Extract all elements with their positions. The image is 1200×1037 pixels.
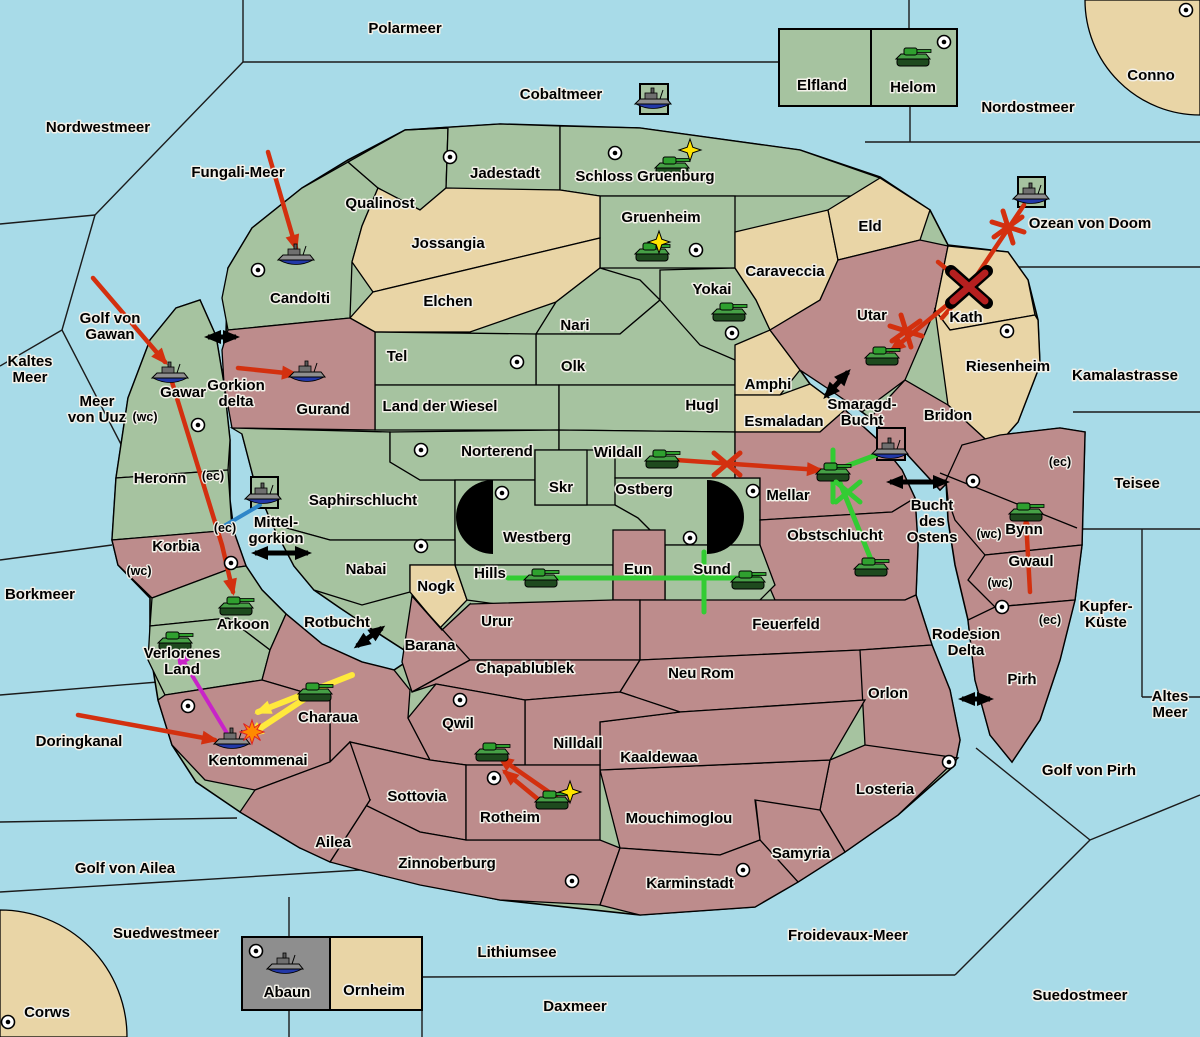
- coast-label: (ec): [202, 469, 224, 483]
- sea-label-fungali-meer: Fungali-Meer: [191, 164, 285, 181]
- box-label-province-box-ornheim: Ornheim: [343, 982, 405, 999]
- region-label-ostberg: Ostberg: [615, 481, 673, 498]
- region-label-tel: Tel: [387, 348, 408, 365]
- region-label-verlorenes-land: Land: [164, 661, 200, 678]
- region-label-obstschlucht: Obstschlucht: [787, 527, 883, 544]
- region-label-barana: Barana: [405, 637, 457, 654]
- circle-dot-marker: [684, 532, 697, 545]
- sea-label-rodesion-delta: Delta: [948, 642, 985, 659]
- explosion-marker: [240, 720, 264, 744]
- circle-dot-marker: [747, 485, 760, 498]
- region-label-nogk: Nogk: [417, 578, 455, 595]
- circle-dot-marker: [250, 945, 263, 958]
- box-label-province-box-elfland: Elfland: [797, 77, 847, 94]
- province-box-ornheim[interactable]: [330, 937, 422, 1010]
- sea-label-golf-von-ailea: Golf von Ailea: [75, 860, 176, 877]
- region-label-mouchimoglou: Mouchimoglou: [626, 810, 733, 827]
- region-rotheim[interactable]: [466, 765, 600, 840]
- sea-label-polarmeer: Polarmeer: [368, 20, 442, 37]
- sea-label-suedostmeer: Suedostmeer: [1032, 987, 1127, 1004]
- region-label-utar: Utar: [857, 307, 887, 324]
- sea-label-ozean-von-doom: Ozean von Doom: [1029, 215, 1152, 232]
- sea-label-nordostmeer: Nordostmeer: [981, 99, 1075, 116]
- region-label-orlon: Orlon: [868, 685, 908, 702]
- sea-label-froidevaux-meer: Froidevaux-Meer: [788, 927, 908, 944]
- circle-dot-marker: [996, 601, 1009, 614]
- sea-label-bucht-des-ostens: Bucht: [911, 497, 954, 514]
- region-label-nari: Nari: [560, 317, 589, 334]
- circle-dot-marker: [454, 694, 467, 707]
- circle-dot-marker: [1180, 4, 1193, 17]
- sea-label-meer-von-uuz: von Uuz: [68, 409, 126, 426]
- sea-label-kupfer-kueste: Küste: [1085, 614, 1127, 631]
- sea-label-smaragd-bucht: Bucht: [841, 412, 884, 429]
- sea-label-lithiumsee: Lithiumsee: [477, 944, 556, 961]
- region-label-hills: Hills: [474, 565, 506, 582]
- sea-label-smaragd-bucht: Smaragd-: [827, 396, 896, 413]
- coast-label: (ec): [1049, 455, 1071, 469]
- sea-label-bucht-des-ostens: des: [919, 513, 945, 530]
- region-label-nabai: Nabai: [346, 561, 387, 578]
- region-label-arkoon: Arkoon: [217, 616, 270, 633]
- region-label-esmaladan: Esmaladan: [744, 413, 823, 430]
- region-label-eld: Eld: [858, 218, 881, 235]
- coast-label: (ec): [214, 521, 236, 535]
- sea-label-rodesion-delta: Rodesion: [932, 626, 1000, 643]
- region-label-gruenheim: Gruenheim: [621, 209, 700, 226]
- sea-label-gorkion-delta: Gorkion: [207, 377, 265, 394]
- province-box-elfland[interactable]: [779, 29, 871, 106]
- sea-label-borkmeer: Borkmeer: [5, 586, 75, 603]
- game-map: PolarmeerNordwestmeerFungali-MeerCobaltm…: [0, 0, 1200, 1037]
- region-label-feuerfeld: Feuerfeld: [752, 616, 820, 633]
- circle-dot-marker: [737, 864, 750, 877]
- region-label-candolti: Candolti: [270, 290, 330, 307]
- sea-label-kaltes-meer: Meer: [12, 369, 47, 386]
- region-label-nilldall: Nilldall: [553, 735, 602, 752]
- coast-label: (wc): [127, 564, 152, 578]
- coast-label: (wc): [133, 410, 158, 424]
- region-label-rotheim: Rotheim: [480, 809, 540, 826]
- coast-label: (wc): [988, 576, 1013, 590]
- region-label-qwil: Qwil: [442, 715, 474, 732]
- sea-label-altes-meer: Meer: [1152, 704, 1187, 721]
- region-label-chapablublek: Chapablublek: [476, 660, 575, 677]
- sea-label-golf-von-gawan: Golf von: [80, 310, 141, 327]
- region-label-caraveccia: Caraveccia: [745, 263, 825, 280]
- region-label-karminstadt: Karminstadt: [646, 875, 734, 892]
- region-label-riesenheim: Riesenheim: [966, 358, 1050, 375]
- circle-dot-marker: [182, 700, 195, 713]
- region-label-gawar: Gawar: [160, 384, 206, 401]
- sea-label-gorkion-delta: delta: [218, 393, 254, 410]
- sea-label-doringkanal: Doringkanal: [36, 733, 123, 750]
- region-label-sottovia: Sottovia: [387, 788, 447, 805]
- region-label-pirh: Pirh: [1007, 671, 1036, 688]
- circle-dot-marker: [1001, 325, 1014, 338]
- region-label-skr: Skr: [549, 479, 573, 496]
- sea-label-golf-von-pirh: Golf von Pirh: [1042, 762, 1136, 779]
- sea-label-altes-meer: Altes: [1152, 688, 1189, 705]
- region-label-heronn: Heronn: [134, 470, 187, 487]
- circle-dot-marker: [566, 875, 579, 888]
- region-label-losteria: Losteria: [856, 781, 915, 798]
- region-label-qualinost: Qualinost: [345, 195, 414, 212]
- sea-label-mittel-gorkion: Mittel-: [254, 514, 298, 531]
- region-label-samyria: Samyria: [772, 845, 831, 862]
- circle-dot-marker: [488, 772, 501, 785]
- region-label-conno: Conno: [1127, 67, 1174, 84]
- circle-dot-marker: [2, 1016, 15, 1029]
- region-label-kath: Kath: [949, 309, 982, 326]
- sea-label-suedwestmeer: Suedwestmeer: [113, 925, 219, 942]
- sea-label-nordwestmeer: Nordwestmeer: [46, 119, 150, 136]
- region-label-yokai: Yokai: [693, 281, 732, 298]
- region-label-elchen: Elchen: [423, 293, 472, 310]
- sea-label-kaltes-meer: Kaltes: [7, 353, 52, 370]
- sea-label-golf-von-gawan: Gawan: [85, 326, 134, 343]
- circle-dot-marker: [690, 244, 703, 257]
- circle-dot-marker: [415, 540, 428, 553]
- region-label-eun: Eun: [624, 561, 652, 578]
- region-label-bridon: Bridon: [924, 407, 972, 424]
- sea-label-kupfer-kueste: Kupfer-: [1079, 598, 1132, 615]
- region-label-jadestadt: Jadestadt: [470, 165, 540, 182]
- region-label-gwaul: Gwaul: [1008, 553, 1053, 570]
- sea-label-kamalastrasse: Kamalastrasse: [1072, 367, 1178, 384]
- circle-dot-marker: [943, 756, 956, 769]
- region-label-mellar: Mellar: [766, 487, 810, 504]
- region-label-verlorenes-land: Verlorenes: [144, 645, 221, 662]
- region-label-norterend: Norterend: [461, 443, 533, 460]
- map-stage: PolarmeerNordwestmeerFungali-MeerCobaltm…: [0, 0, 1200, 1037]
- circle-dot-marker: [192, 419, 205, 432]
- region-label-land-der-wiesel: Land der Wiesel: [383, 398, 498, 415]
- circle-dot-marker: [415, 444, 428, 457]
- region-label-jossangia: Jossangia: [411, 235, 485, 252]
- circle-dot-marker: [496, 487, 509, 500]
- region-label-sund: Sund: [693, 561, 731, 578]
- region-label-ailea: Ailea: [315, 834, 352, 851]
- region-skr[interactable]: [535, 450, 587, 505]
- region-label-corws: Corws: [24, 1004, 70, 1021]
- circle-dot-marker: [967, 475, 980, 488]
- circle-dot-marker: [225, 557, 238, 570]
- region-label-kentommenai: Kentommenai: [208, 752, 307, 769]
- region-label-urur: Urur: [481, 613, 513, 630]
- region-label-bynn: Bynn: [1005, 521, 1043, 538]
- circle-dot-marker: [938, 36, 951, 49]
- sea-label-bucht-des-ostens: Ostens: [907, 529, 958, 546]
- region-label-amphi: Amphi: [745, 376, 792, 393]
- circle-dot-marker: [252, 264, 265, 277]
- region-label-gurand: Gurand: [296, 401, 349, 418]
- region-label-neu-rom: Neu Rom: [668, 665, 734, 682]
- region-label-olk: Olk: [561, 358, 586, 375]
- sea-label-teisee: Teisee: [1114, 475, 1160, 492]
- sea-label-meer-von-uuz: Meer: [79, 393, 114, 410]
- circle-dot-marker: [609, 147, 622, 160]
- box-label-province-box-helom: Helom: [890, 79, 936, 96]
- region-label-korbia: Korbia: [152, 538, 200, 555]
- region-label-kaaldewaa: Kaaldewaa: [620, 749, 698, 766]
- box-label-province-box-abaun: Abaun: [264, 984, 311, 1001]
- coast-label: (ec): [1039, 613, 1061, 627]
- region-label-wildall: Wildall: [594, 444, 642, 461]
- sea-label-mittel-gorkion: gorkion: [249, 530, 304, 547]
- sea-label-daxmeer: Daxmeer: [543, 998, 607, 1015]
- region-label-charaua: Charaua: [298, 709, 359, 726]
- region-label-zinnoberburg: Zinnoberburg: [398, 855, 496, 872]
- region-label-hugl: Hugl: [685, 397, 718, 414]
- circle-dot-marker: [444, 151, 457, 164]
- sea-label-cobaltmeer: Cobaltmeer: [520, 86, 603, 103]
- region-label-saphirschlucht: Saphirschlucht: [309, 492, 417, 509]
- circle-dot-marker: [726, 327, 739, 340]
- sea-label-rotbucht: Rotbucht: [304, 614, 370, 631]
- region-label-westberg: Westberg: [503, 529, 571, 546]
- coast-label: (wc): [977, 527, 1002, 541]
- circle-dot-marker: [511, 356, 524, 369]
- region-label-schloss-gruenburg: Schloss Gruenburg: [575, 168, 714, 185]
